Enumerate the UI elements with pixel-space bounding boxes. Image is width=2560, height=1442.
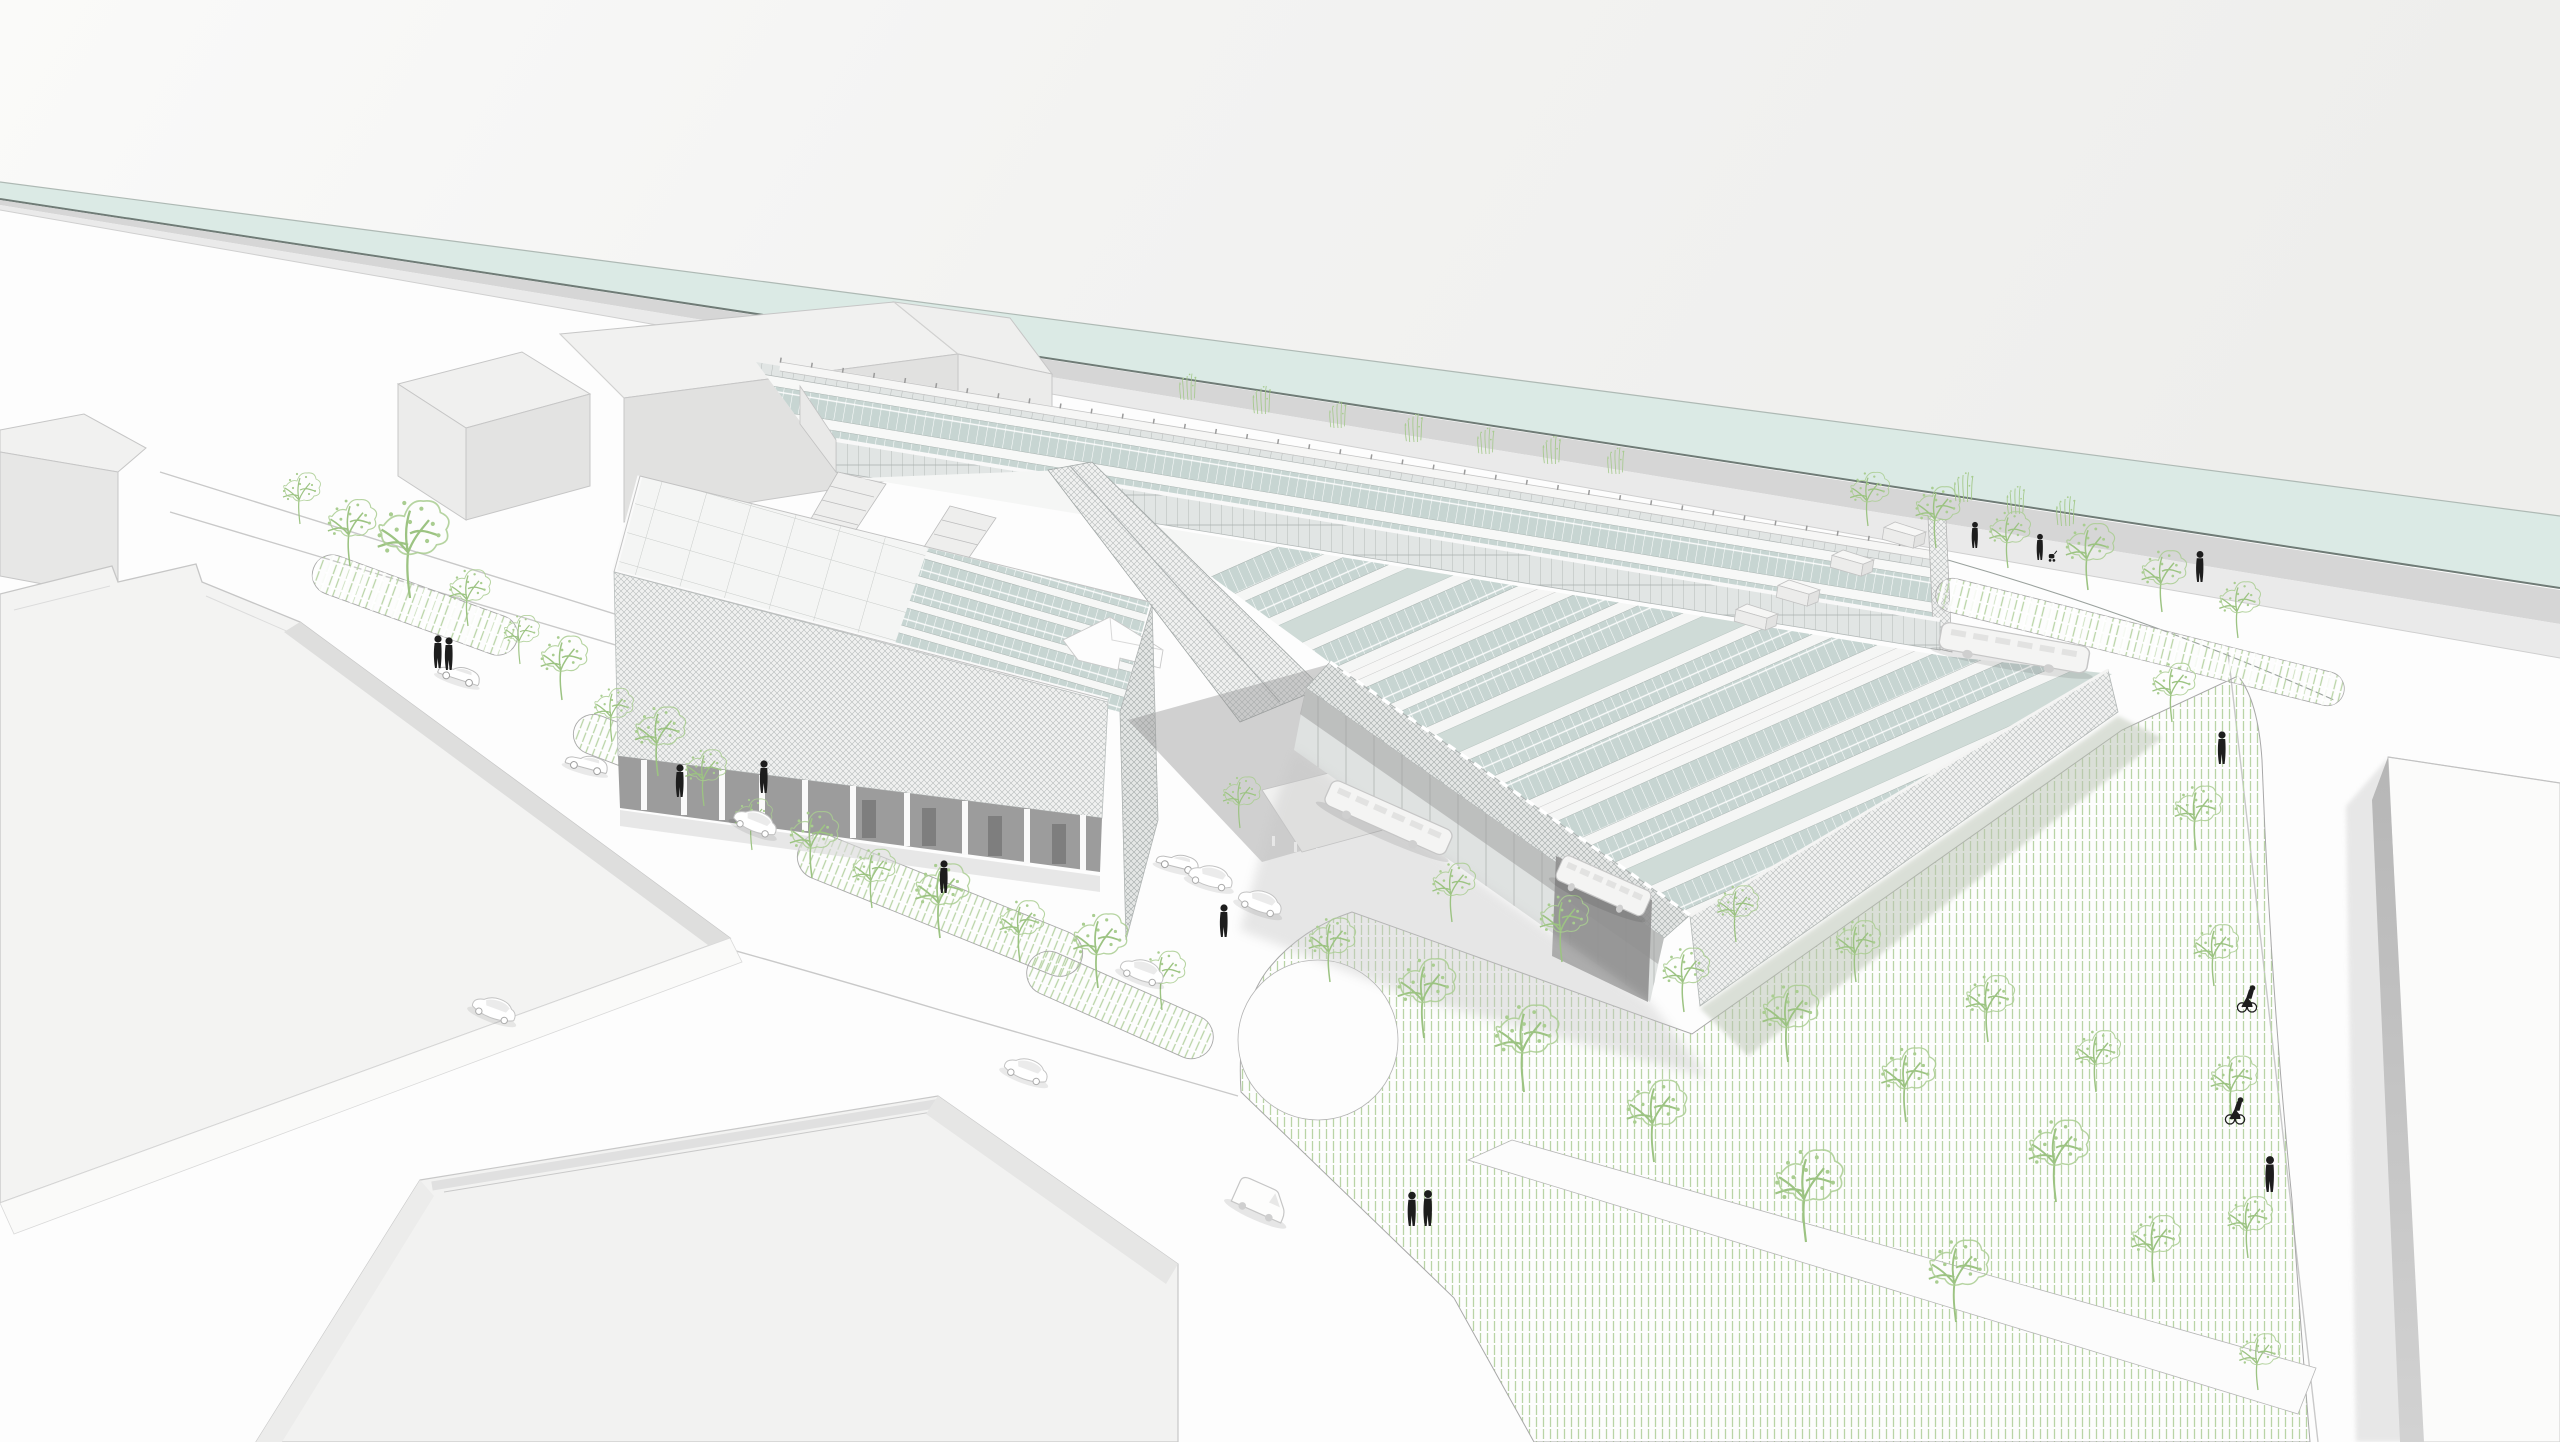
architectural-rendering: Aerial architectural rendering — riversi… (0, 0, 2560, 1442)
neighbor-building-right (2346, 757, 2560, 1442)
turning-circle (1238, 960, 1398, 1120)
scene-canvas (0, 0, 2560, 1442)
